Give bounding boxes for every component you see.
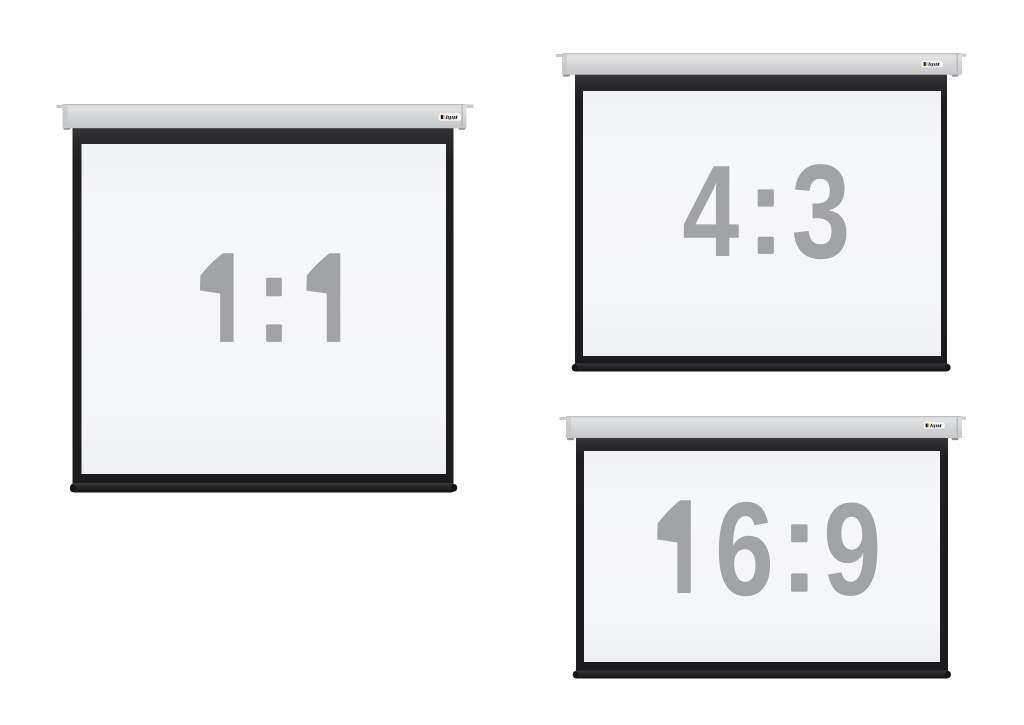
svg-text:6: 6: [715, 474, 774, 624]
svg-text:9: 9: [823, 476, 881, 624]
svg-text:3: 3: [791, 137, 850, 287]
svg-text:4: 4: [682, 138, 739, 284]
